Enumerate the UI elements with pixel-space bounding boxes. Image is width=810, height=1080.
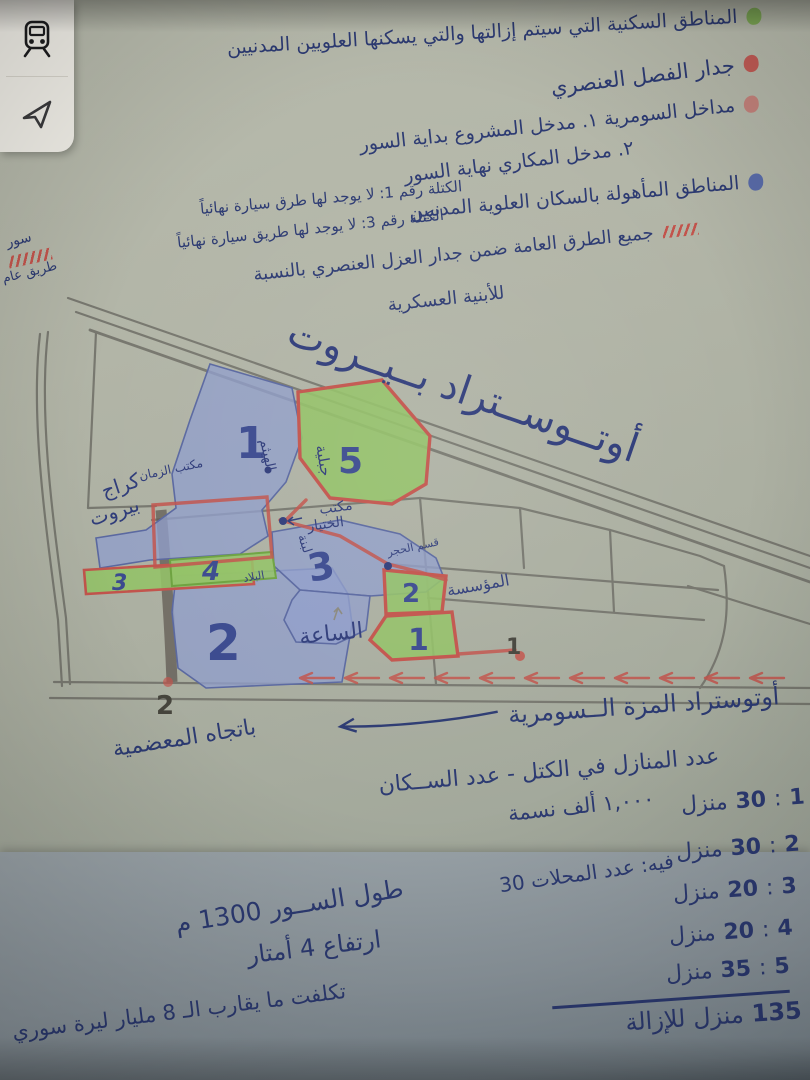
grid-horizontal <box>428 598 704 620</box>
house-count: 30 <box>730 834 762 861</box>
navigation-arrow-icon <box>19 96 55 132</box>
house-count: 35 <box>720 956 752 983</box>
wall-direction-arrows <box>300 673 784 683</box>
beirut-garage-label2: بيروت <box>86 492 142 531</box>
green-region-5-numeral: 5 <box>338 441 363 482</box>
grid-vertical <box>610 530 614 612</box>
separator: : <box>768 833 777 859</box>
green-region-1-right-numeral: 1 <box>408 623 429 658</box>
legend-item-areas-to-remove: المناطق السكنية التي سيتم إزالتها والتي … <box>150 5 762 64</box>
house-unit: منزل <box>672 879 720 907</box>
green-dot-icon <box>746 8 762 26</box>
map-controls-card <box>0 0 74 152</box>
photo-of-hand-drawn-map: المناطق السكنية التي سيتم إزالتها والتي … <box>0 0 810 1080</box>
wall-end-mark <box>163 677 173 687</box>
left-road <box>37 334 62 686</box>
road-direction-label: باتجاه المعضمية <box>111 715 258 763</box>
legend-text: جدار الفصل العنصري <box>549 53 736 100</box>
wall-marker-2: 2 <box>156 691 174 720</box>
plot-line <box>88 332 96 508</box>
grid-vertical <box>520 508 524 568</box>
block-number: 3 <box>781 873 798 899</box>
wall-marker-1: 1 <box>506 635 521 660</box>
stone-section-point <box>384 562 392 570</box>
block-number: 4 <box>777 915 794 941</box>
house-unit: منزل <box>668 921 716 949</box>
institution-label: المؤسسة <box>445 570 511 601</box>
hand-drawn-map: 1 2 3 5 4 3 2 1 1 2 أوتــوســتراد بــيــ… <box>0 268 810 720</box>
house-unit: منزل <box>665 959 713 987</box>
separator: : <box>761 917 770 943</box>
block-number: 5 <box>774 953 791 979</box>
separator: : <box>765 875 774 901</box>
locate-button[interactable] <box>0 77 74 153</box>
green-region-2-right-numeral: 2 <box>402 579 420 609</box>
green-region-4-numeral: 4 <box>201 557 220 587</box>
house-count: 20 <box>723 918 755 945</box>
block-number: 2 <box>784 831 801 857</box>
separator: : <box>758 955 767 981</box>
total-count: 135 <box>751 997 803 1028</box>
highway-service-line <box>688 586 810 624</box>
red-dot-icon <box>743 54 760 73</box>
green-region-3-numeral: 3 <box>112 571 127 596</box>
transit-button[interactable] <box>0 0 74 76</box>
population-note: ١,٠٠٠ ألف نسمة <box>394 786 655 837</box>
house-unit: منزل <box>680 790 728 818</box>
train-icon <box>20 18 54 58</box>
stats-title-text: عدد المنازل في الكتل - عدد الســكان <box>378 744 721 799</box>
blue-region-2-numeral: 2 <box>206 614 241 672</box>
green-region-5-shape <box>298 380 430 504</box>
block-number: 1 <box>789 784 806 810</box>
separator: : <box>773 786 782 812</box>
legend-text: المناطق السكنية التي سيتم إزالتها والتي … <box>226 7 738 60</box>
left-road <box>45 332 70 684</box>
house-count: 30 <box>735 787 767 814</box>
clock-label: الساعة <box>298 618 364 650</box>
direction-text: باتجاه المعضمية <box>111 715 258 762</box>
khtyar-point <box>279 517 287 525</box>
wall-segment <box>286 500 306 520</box>
blue-dot-icon <box>748 173 764 191</box>
house-unit: منزل <box>675 837 723 865</box>
pink-dot-icon <box>743 95 760 113</box>
house-count: 20 <box>727 876 759 903</box>
grid-right <box>700 566 727 688</box>
haytham-point <box>265 467 272 474</box>
wall-hatch-icon <box>662 223 699 239</box>
